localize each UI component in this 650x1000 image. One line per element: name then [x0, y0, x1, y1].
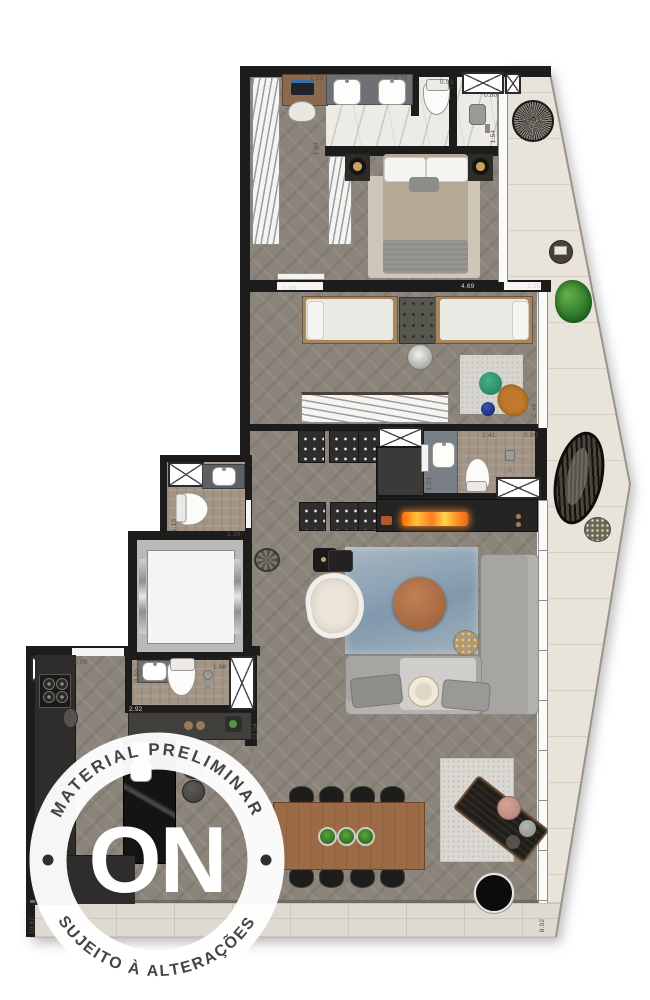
table-lamp-left: [349, 158, 366, 175]
suite-door-leaf: [277, 273, 325, 280]
duct-shaft-entry: [229, 656, 255, 710]
bedroom-window: [498, 92, 508, 282]
laptop: [291, 80, 314, 95]
closet-rack-left: [252, 77, 280, 245]
fan-decor: [512, 100, 554, 142]
cooktop-burner: [43, 678, 55, 690]
wall-elevator-right: [243, 531, 252, 660]
hanging-rack: [301, 392, 449, 423]
elevator-door-right: [234, 559, 241, 634]
daybed-left: [302, 296, 398, 344]
storage-cabinet: [376, 446, 425, 497]
sofa-pillow-right: [441, 679, 491, 712]
side-table-rose: [497, 796, 521, 820]
dim-bath2-w: 1.41: [482, 432, 495, 439]
steel-side-table: [407, 344, 433, 370]
floor-plan-canvas: { "watermark": { "arc_top": "MATERIAL PR…: [0, 0, 650, 1000]
bed-throw: [383, 240, 468, 273]
flower-pot: [584, 517, 611, 542]
gold-decor: [321, 557, 326, 562]
wall-bath3-top: [160, 455, 252, 462]
dim-lavabo-l: 0.90: [134, 669, 141, 682]
wine-rack: [299, 502, 326, 531]
bath2-toilet: [465, 458, 490, 491]
dim-kitchen-w: 2.92: [129, 706, 142, 713]
potted-plant: [555, 280, 592, 323]
bath2-door-leaf: [421, 444, 429, 472]
wine-rack: [330, 502, 359, 531]
dim-vanity: 1.53: [310, 75, 323, 82]
wall-left-mid: [240, 292, 250, 458]
dim-balcony-door: 1.25: [527, 283, 540, 290]
dim-lavabo-w: 1.96: [213, 664, 226, 671]
sink-left: [333, 79, 361, 105]
console-knobs: [516, 514, 521, 519]
bath2-shower-fixture: [505, 450, 515, 461]
side-table-small: [506, 835, 520, 849]
hall-decor-table: [254, 548, 280, 572]
stamp-dot-right: [261, 855, 272, 866]
fire-pit-table: [474, 873, 514, 913]
table-plant: [337, 827, 356, 846]
duct-shaft-top-small: [505, 73, 521, 94]
dim-suite-width: 4.69: [461, 283, 474, 290]
daybed-right: [435, 296, 533, 344]
magazine: [554, 246, 567, 255]
table-plant: [356, 827, 375, 846]
duct-shaft-top: [462, 72, 504, 94]
daybed-left-pillow: [307, 301, 324, 340]
dim-shower-l: 1.54: [490, 130, 497, 143]
bath2-sink: [432, 442, 455, 468]
black-side-table-b: [328, 550, 353, 572]
daybed-right-pillow: [512, 301, 529, 340]
dim-terrace: 8.92: [539, 919, 546, 932]
sofa-pillow-left: [350, 673, 404, 708]
dim-shower-w: 0.80: [484, 92, 497, 99]
dim-sinks: 1.72: [394, 75, 407, 82]
dim-service: 1.09: [74, 659, 87, 666]
shower-fixture: [469, 104, 486, 125]
watermark-stamp: MATERIAL PRELIMINAR SUJEITO À ALTERAÇÕES…: [22, 725, 292, 995]
lavabo-hand-shower: [203, 670, 213, 680]
dim-bath2-l: 1.21: [426, 477, 433, 490]
kitchen-pass-opening: [72, 648, 124, 656]
tufted-ottoman: [399, 297, 438, 344]
dim-suite-door: 0.96: [283, 285, 296, 292]
dim-bath3-l: 1.13: [171, 519, 178, 532]
stamp-dot-left: [43, 855, 54, 866]
cooktop-burner: [56, 678, 68, 690]
table-lamp-right: [472, 158, 489, 175]
flower-side-table: [453, 630, 479, 656]
dim-closet: 1.64: [313, 142, 320, 155]
dim-bath3-w: 1.39: [227, 531, 240, 538]
table-plant: [318, 827, 337, 846]
wall-left-upper: [240, 66, 250, 292]
wall-bath3-right: [245, 455, 252, 543]
sphere-decor: [481, 402, 495, 416]
dim-balcony-w: 2.48: [531, 404, 538, 417]
elevator: [137, 540, 243, 652]
duct-shaft-bath3: [168, 462, 204, 487]
side-table-gray: [519, 820, 536, 837]
wine-rack: [298, 430, 325, 463]
cooktop-burner: [43, 691, 55, 703]
duct-shaft-bath2: [496, 477, 541, 499]
sink-right: [378, 79, 406, 105]
stamp-logo: ON: [89, 807, 226, 912]
fireplace-flames: [402, 512, 468, 526]
bath3-door-opening: [246, 500, 251, 528]
black-side-table: [313, 548, 353, 573]
dim-bath2-niche: 0.90: [524, 432, 537, 439]
accent-pillow: [409, 177, 439, 192]
wine-rack: [329, 430, 359, 463]
dim-wc: 0.93: [440, 79, 453, 86]
wall-bath3-left: [160, 455, 167, 543]
round-tray-table: [408, 676, 439, 707]
elevator-door-left: [139, 559, 146, 634]
wall-elevator-left: [128, 531, 137, 660]
elevator-car: [147, 550, 235, 644]
lounge-window: [538, 292, 548, 428]
lavabo-sink: [142, 662, 167, 681]
coffee-table: [393, 577, 446, 630]
bath3-sink: [212, 467, 236, 486]
cooktop-burner: [56, 691, 68, 703]
firewood-box: [381, 516, 392, 525]
wall-wc-shower: [449, 77, 457, 150]
vanity-chair: [288, 101, 316, 122]
wicker-seat: [561, 446, 593, 507]
